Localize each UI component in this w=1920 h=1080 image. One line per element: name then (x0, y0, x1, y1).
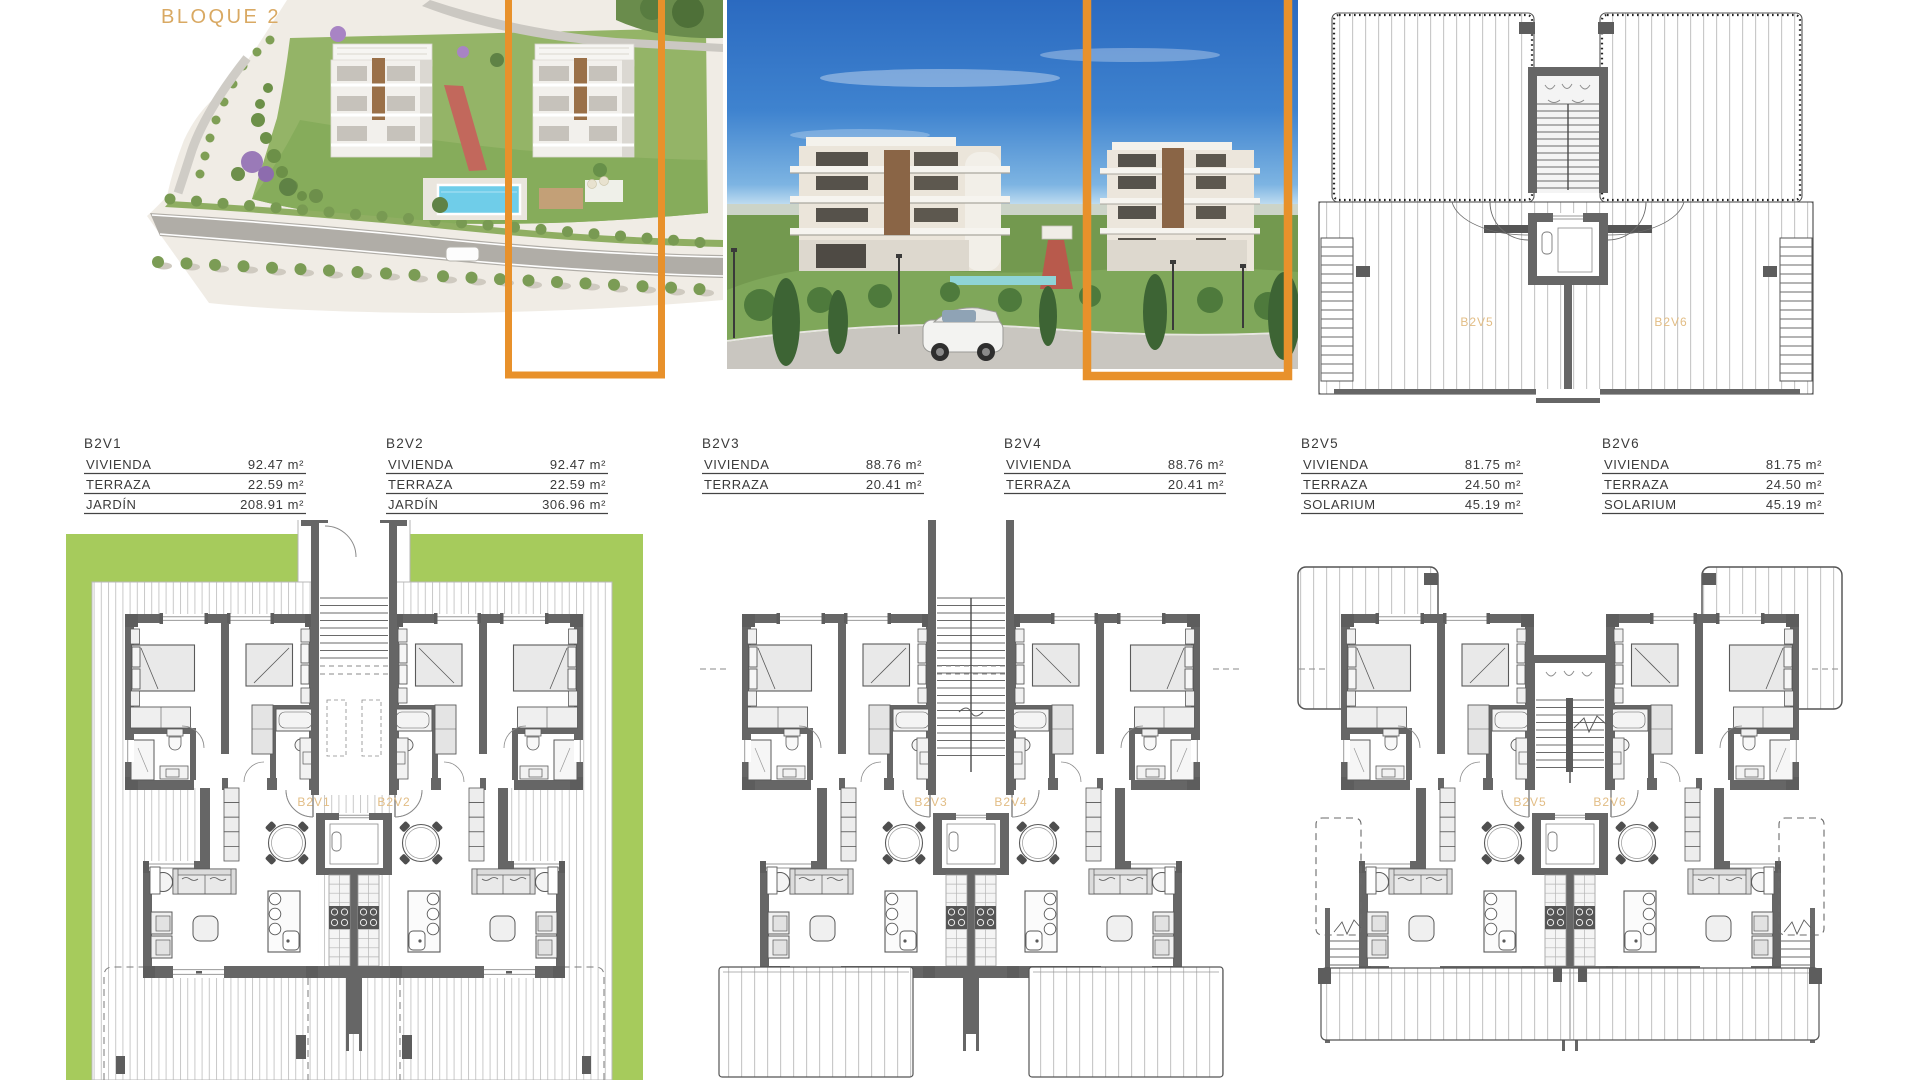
svg-text:B2V6: B2V6 (1602, 436, 1640, 451)
svg-text:VIVIENDA: VIVIENDA (388, 457, 453, 472)
svg-text:92.47 m²: 92.47 m² (550, 457, 606, 472)
svg-text:VIVIENDA: VIVIENDA (1604, 457, 1669, 472)
svg-text:JARDÍN: JARDÍN (388, 497, 439, 512)
svg-text:20.41 m²: 20.41 m² (866, 477, 922, 492)
svg-text:81.75 m²: 81.75 m² (1465, 457, 1521, 472)
svg-text:B2V5: B2V5 (1513, 795, 1546, 809)
svg-text:24.50 m²: 24.50 m² (1465, 477, 1521, 492)
svg-text:45.19 m²: 45.19 m² (1465, 497, 1521, 512)
svg-text:B2V2: B2V2 (386, 436, 424, 451)
svg-text:B2V5: B2V5 (1301, 436, 1339, 451)
svg-text:20.41 m²: 20.41 m² (1168, 477, 1224, 492)
svg-text:208.91 m²: 208.91 m² (240, 497, 304, 512)
svg-text:VIVIENDA: VIVIENDA (1006, 457, 1071, 472)
svg-text:TERRAZA: TERRAZA (1604, 477, 1669, 492)
svg-text:TERRAZA: TERRAZA (704, 477, 769, 492)
svg-text:B2V5: B2V5 (1460, 315, 1493, 329)
svg-text:BLOQUE 2: BLOQUE 2 (161, 6, 281, 28)
svg-text:22.59 m²: 22.59 m² (550, 477, 606, 492)
svg-text:45.19 m²: 45.19 m² (1766, 497, 1822, 512)
svg-text:TERRAZA: TERRAZA (1006, 477, 1071, 492)
svg-text:VIVIENDA: VIVIENDA (86, 457, 151, 472)
svg-text:22.59 m²: 22.59 m² (248, 477, 304, 492)
svg-text:JARDÍN: JARDÍN (86, 497, 137, 512)
svg-text:VIVIENDA: VIVIENDA (1303, 457, 1368, 472)
svg-text:92.47 m²: 92.47 m² (248, 457, 304, 472)
svg-text:VIVIENDA: VIVIENDA (704, 457, 769, 472)
svg-text:B2V3: B2V3 (914, 795, 947, 809)
svg-text:24.50 m²: 24.50 m² (1766, 477, 1822, 492)
svg-text:B2V2: B2V2 (377, 795, 410, 809)
svg-text:SOLARIUM: SOLARIUM (1604, 497, 1677, 512)
svg-text:81.75 m²: 81.75 m² (1766, 457, 1822, 472)
svg-text:B2V1: B2V1 (297, 795, 330, 809)
svg-text:88.76 m²: 88.76 m² (866, 457, 922, 472)
svg-text:TERRAZA: TERRAZA (388, 477, 453, 492)
svg-text:TERRAZA: TERRAZA (86, 477, 151, 492)
svg-text:B2V3: B2V3 (702, 436, 740, 451)
svg-text:B2V4: B2V4 (994, 795, 1027, 809)
svg-text:TERRAZA: TERRAZA (1303, 477, 1368, 492)
svg-text:B2V6: B2V6 (1654, 315, 1687, 329)
svg-text:88.76 m²: 88.76 m² (1168, 457, 1224, 472)
svg-text:B2V4: B2V4 (1004, 436, 1042, 451)
svg-text:SOLARIUM: SOLARIUM (1303, 497, 1376, 512)
svg-text:B2V6: B2V6 (1593, 795, 1626, 809)
svg-text:B2V1: B2V1 (84, 436, 122, 451)
svg-text:306.96 m²: 306.96 m² (542, 497, 606, 512)
